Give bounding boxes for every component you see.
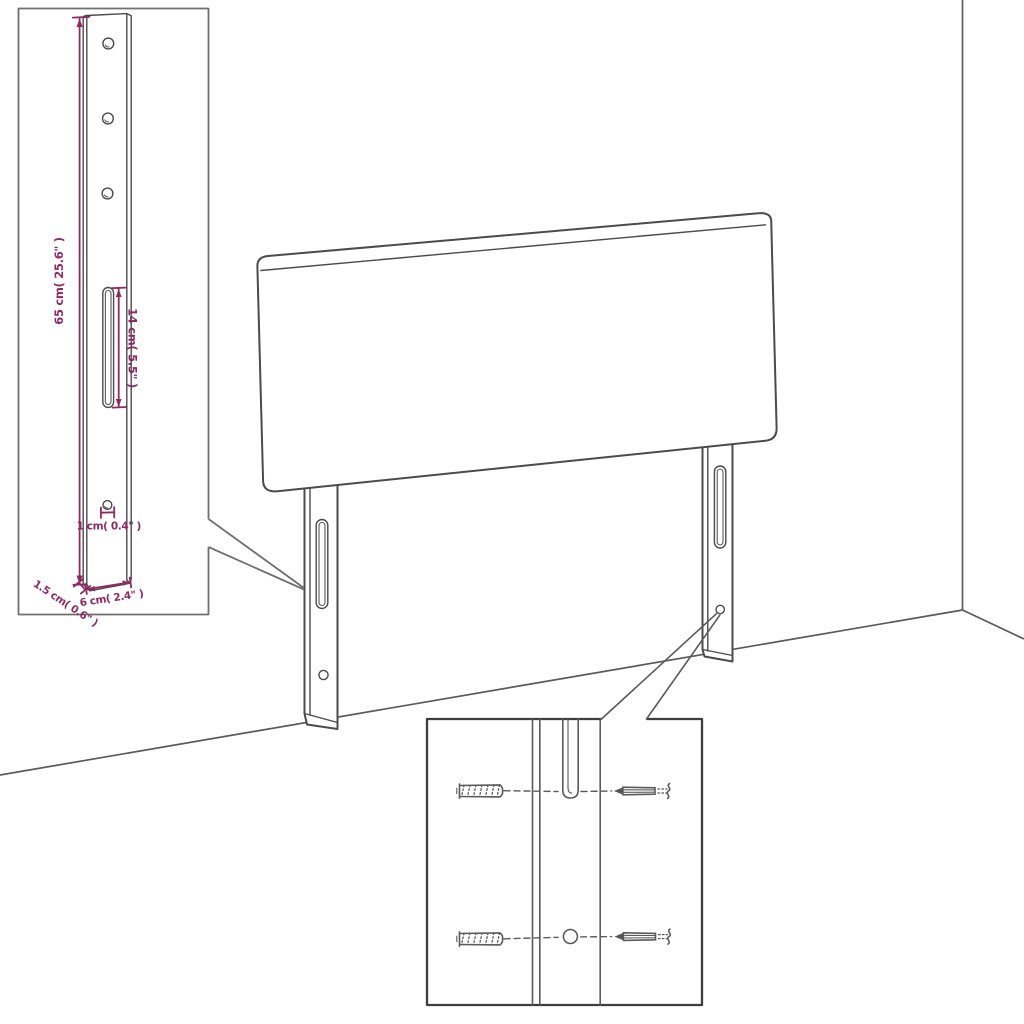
floor-line-right xyxy=(963,610,1024,639)
dim-slot-length-label: 14 cm( 5.5" ) xyxy=(126,308,140,388)
dim-slot-length-cap-bottom xyxy=(113,407,126,408)
dim-hole-diameter-label: 1 cm( 0.4" ) xyxy=(77,521,141,533)
hardware-detail-inset xyxy=(427,614,720,1005)
inset-panel xyxy=(427,719,702,1005)
diagram-canvas: 65 cm( 25.6" ) 14 cm( 5.5" ) 1 cm( 0.4" … xyxy=(0,0,1024,1024)
dim-leg-height-cap-top xyxy=(73,17,90,18)
callout-line-left xyxy=(602,614,717,719)
dim-slot-length-cap-top xyxy=(112,288,125,289)
dim-leg-width-cap-left xyxy=(86,584,87,594)
headboard-panel xyxy=(257,213,776,491)
leader-slot-to-screw-top xyxy=(581,791,612,792)
right-leg xyxy=(703,421,733,662)
headboard-dimension-diagram: 65 cm( 25.6" ) 14 cm( 5.5" ) 1 cm( 0.4" … xyxy=(0,0,1024,1024)
dim-leg-height-label: 65 cm( 25.6" ) xyxy=(52,237,66,325)
headboard xyxy=(257,213,776,491)
